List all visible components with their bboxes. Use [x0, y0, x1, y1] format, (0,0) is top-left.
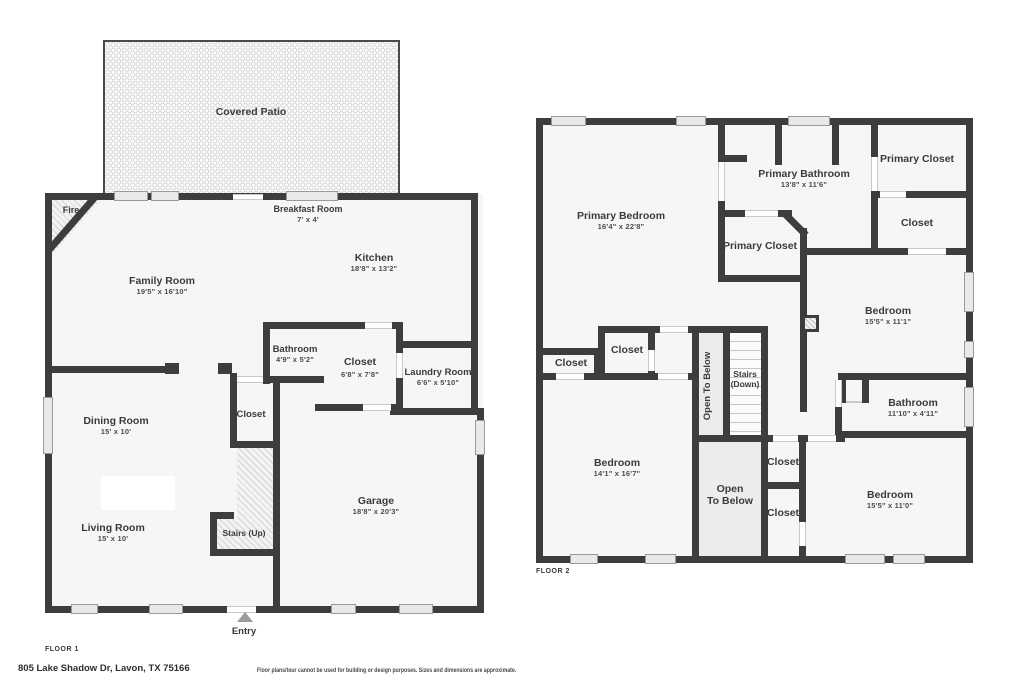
window — [845, 554, 885, 564]
room-label-primary-closet-mid: Primary Closet — [700, 240, 820, 252]
open-to-below-main-label: Open To Below — [694, 483, 766, 508]
door-opening — [908, 248, 946, 255]
wall — [832, 125, 839, 165]
disclaimer-text: Floor plans/tour cannot be used for buil… — [257, 667, 516, 674]
door-opening — [880, 191, 906, 198]
room-label-bedroom-se: Bedroom 15'5" x 11'0" — [830, 489, 950, 511]
room-label-bedroom-ne: Bedroom 15'5" x 11'1" — [828, 305, 948, 327]
wall — [775, 125, 782, 165]
open-to-below-column-label: Open To Below — [702, 331, 714, 441]
wall — [835, 431, 973, 438]
wall — [718, 275, 807, 282]
door-opening — [799, 522, 806, 546]
door-opening — [658, 373, 688, 380]
wall — [768, 482, 806, 489]
chimney-box — [802, 315, 819, 332]
stairs-down-label: Stairs (Down) — [722, 369, 768, 389]
window — [570, 554, 598, 564]
wall — [838, 373, 973, 380]
floor2-plan: Primary Bedroom 16'4" x 22'8" Primary Ba… — [0, 0, 1024, 683]
floorplan-canvas: Covered Patio — [0, 0, 1024, 683]
room-label-primary-bathroom: Primary Bathroom 13'8" x 11'6" — [734, 168, 874, 190]
window — [676, 116, 706, 126]
room-label-bathroom2: Bathroom 11'10" x 4'11" — [853, 397, 973, 419]
property-address: 805 Lake Shadow Dr, Lavon, TX 75166 — [18, 663, 190, 674]
room-label-closet-m: Closet — [596, 344, 658, 356]
wall — [718, 155, 747, 162]
wall — [536, 118, 973, 125]
wall — [598, 326, 705, 333]
door-opening — [718, 162, 725, 201]
room-label-closet-r: Closet — [877, 217, 957, 229]
wall — [536, 348, 598, 355]
floor2-title: FLOOR 2 — [536, 568, 570, 575]
room-label-closet-c2: Closet — [752, 507, 814, 519]
room-label-closet-l: Closet — [540, 357, 602, 369]
door-opening — [773, 435, 798, 442]
door-opening — [660, 326, 688, 333]
door-opening — [556, 373, 584, 380]
wall — [718, 125, 725, 157]
window — [893, 554, 925, 564]
window — [788, 116, 830, 126]
room-label-bedroom-w: Bedroom 14'1" x 16'7" — [557, 457, 677, 479]
room-label-primary-closet-tr: Primary Closet — [857, 153, 977, 165]
door-opening — [808, 435, 836, 442]
window — [645, 554, 676, 564]
window — [964, 272, 974, 312]
door-opening — [835, 380, 842, 407]
window — [551, 116, 586, 126]
door-opening — [745, 210, 778, 217]
window — [964, 341, 974, 358]
wall — [536, 118, 543, 563]
room-label-primary-bedroom: Primary Bedroom 16'4" x 22'8" — [546, 210, 696, 232]
room-label-closet-c1: Closet — [752, 456, 814, 468]
wall — [806, 248, 973, 255]
